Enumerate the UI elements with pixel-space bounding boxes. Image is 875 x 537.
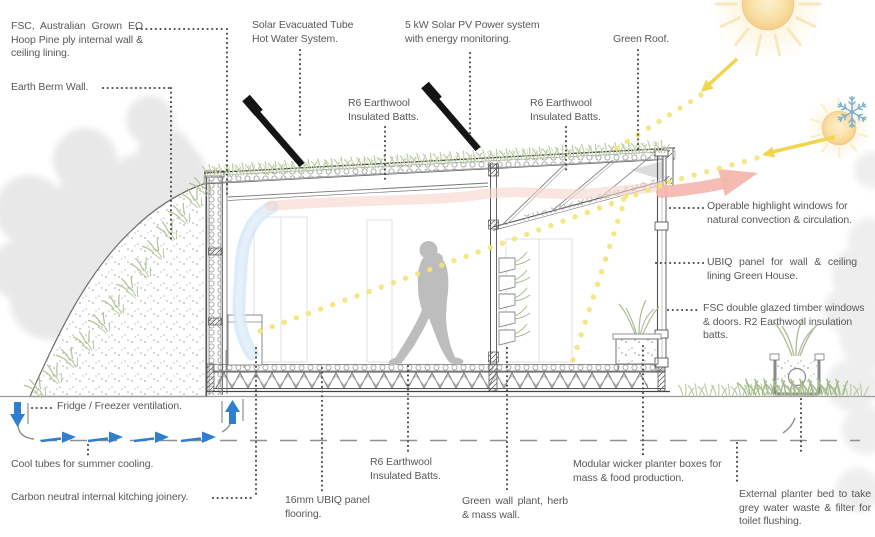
callout-external-planter: External planter bed to take grey water …	[739, 488, 871, 529]
callout-r6-batts-roof-left: R6 Earthwool Insulated Batts.	[348, 97, 440, 124]
green-wall-planter-boxes	[499, 252, 530, 345]
callout-green-roof: Green Roof.	[613, 33, 693, 47]
callout-carbon-joinery: Carbon neutral internal kitching joinery…	[11, 491, 221, 505]
callout-green-wall: Green wall plant, herb & mass wall.	[462, 495, 568, 522]
callout-fridge-vent: Fridge / Freezer ventilation.	[57, 400, 227, 414]
callout-ubiq-panel: UBIQ panel for wall & ceiling lining Gre…	[707, 256, 857, 283]
callout-cool-tubes: Cool tubes for summer cooling.	[11, 458, 191, 472]
callout-solar-hot-water: Solar Evacuated Tube Hot Water System.	[252, 19, 364, 46]
earth-berm-wall	[205, 171, 227, 397]
cool-tube-arrow-icons	[41, 432, 216, 444]
wicker-planter-box	[613, 300, 661, 371]
callout-r6-batts-roof-right: R6 Earthwool Insulated Batts.	[530, 97, 622, 124]
callout-r6-batts-floor: R6 Earthwool Insulated Batts.	[370, 456, 462, 483]
callout-wicker-planters: Modular wicker planter boxes for mass & …	[573, 458, 741, 485]
callout-fsc-glazing: FSC double glazed timber windows & doors…	[703, 302, 865, 343]
architecture-section-diagram: FSC, Australian Grown EO Hoop Pine ply i…	[0, 0, 875, 537]
summer-sun-arrow-icon	[701, 59, 737, 92]
callout-operable-windows: Operable highlight windows for natural c…	[707, 200, 859, 227]
floor-truss	[207, 364, 670, 392]
summer-sun-icon	[710, 0, 826, 62]
callout-earth-berm: Earth Berm Wall.	[11, 81, 131, 95]
callout-solar-pv: 5 kW Solar PV Power system with energy m…	[405, 19, 550, 46]
winter-sun-icon	[807, 96, 871, 160]
solar-hot-water-collector-icon	[246, 98, 305, 165]
callout-fsc-ply: FSC, Australian Grown EO Hoop Pine ply i…	[11, 20, 143, 61]
callout-ubiq-floor: 16mm UBIQ panel flooring.	[285, 494, 380, 521]
